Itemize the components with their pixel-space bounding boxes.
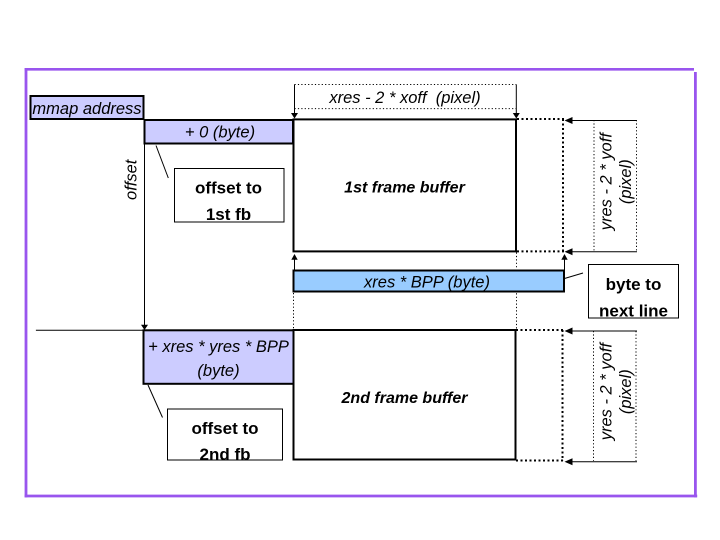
svg-text:2nd frame buffer: 2nd frame buffer <box>341 390 469 407</box>
svg-text:1st frame buffer: 1st frame buffer <box>344 179 465 196</box>
svg-text:+ 0 (byte): + 0 (byte) <box>185 124 255 142</box>
svg-text:yres - 2 * yoff: yres - 2 * yoff <box>597 131 615 232</box>
svg-text:xres * BPP (byte): xres * BPP (byte) <box>363 274 490 292</box>
svg-text:xres - 2 * xoff (pixel): xres - 2 * xoff (pixel) <box>328 89 480 107</box>
svg-text:offset to: offset to <box>191 419 258 438</box>
svg-text:+ xres * yres * BPP: + xres * yres * BPP <box>148 338 289 356</box>
svg-text:byte to: byte to <box>606 275 662 294</box>
svg-text:(pixel): (pixel) <box>617 159 635 204</box>
svg-text:next line: next line <box>599 302 668 321</box>
svg-text:(byte): (byte) <box>197 362 239 380</box>
svg-text:2nd fb: 2nd fb <box>200 445 251 464</box>
svg-text:offset: offset <box>123 158 141 200</box>
svg-text:1st fb: 1st fb <box>206 205 251 224</box>
svg-text:yres - 2 * yoff: yres - 2 * yoff <box>597 341 615 442</box>
svg-text:mmap address: mmap address <box>32 100 141 118</box>
svg-text:offset to: offset to <box>195 179 262 198</box>
svg-text:(pixel): (pixel) <box>617 369 635 414</box>
